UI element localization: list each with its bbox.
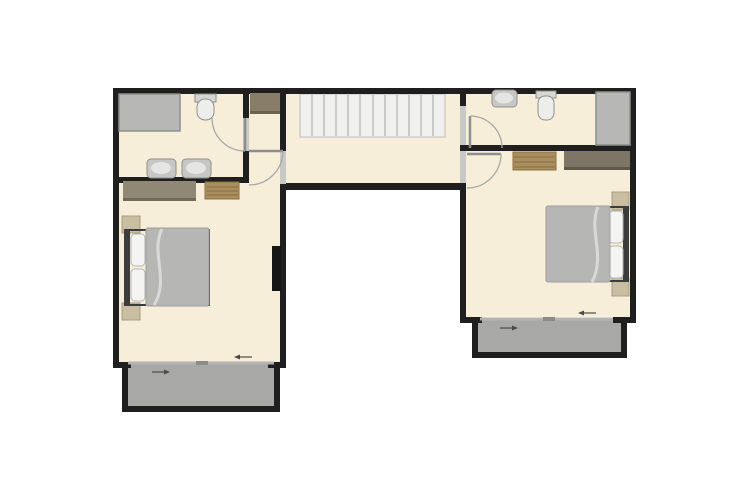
wall-right-bathroom-south	[466, 145, 636, 151]
left-bed-blanket	[146, 228, 209, 306]
left-sliding-door-handle	[196, 361, 208, 365]
right-sliding-door-handle	[543, 317, 555, 321]
right-sink-basin	[495, 93, 513, 104]
right-bed-headboard	[623, 208, 628, 280]
left-shower	[119, 94, 180, 131]
wall-right-bedroom-south-west-stub	[460, 317, 482, 323]
closet-shelf-edge	[250, 111, 280, 114]
right-shower	[596, 92, 630, 145]
wall-left-closet-east	[280, 88, 286, 151]
left-bed-pillow-1	[131, 234, 145, 266]
wall-outer-left	[113, 88, 119, 368]
wall-right-bathroom-west-upper	[460, 88, 466, 106]
right-bed-pillow-2	[609, 246, 623, 278]
wall-hall-south	[280, 183, 466, 190]
floor-plan-image	[0, 0, 755, 504]
right-bathroom-doorway	[460, 106, 466, 145]
wall-right-bedroom-south-east-stub	[613, 317, 636, 323]
wall-right-bathroom-west-mid	[460, 145, 466, 151]
right-toilet-bowl	[538, 96, 554, 120]
closet-shelf	[250, 93, 280, 114]
left-toilet-bowl	[197, 99, 214, 120]
wall-outer-top	[113, 88, 636, 94]
wall-right-bedroom-west	[460, 183, 466, 323]
left-sink-2-basin	[186, 162, 206, 174]
floor-plan-svg	[0, 0, 755, 504]
right-bed-pillow-1	[609, 211, 623, 243]
right-bed-blanket	[546, 206, 610, 282]
right-balcony-deck	[475, 320, 624, 355]
left-dresser-edge	[123, 198, 196, 201]
left-balcony-deck	[125, 364, 277, 409]
right-dresser-edge	[564, 167, 630, 170]
left-bed-headboard	[125, 231, 130, 304]
wall-outer-right	[630, 88, 636, 323]
wall-left-bathroom-east-lower	[243, 151, 249, 183]
left-bed-pillow-2	[131, 269, 145, 301]
left-bedroom-tv	[272, 246, 281, 291]
left-sink-1-basin	[151, 162, 171, 174]
wall-left-bathroom-east-upper	[243, 88, 249, 118]
right-bedroom-doorway	[460, 151, 466, 183]
